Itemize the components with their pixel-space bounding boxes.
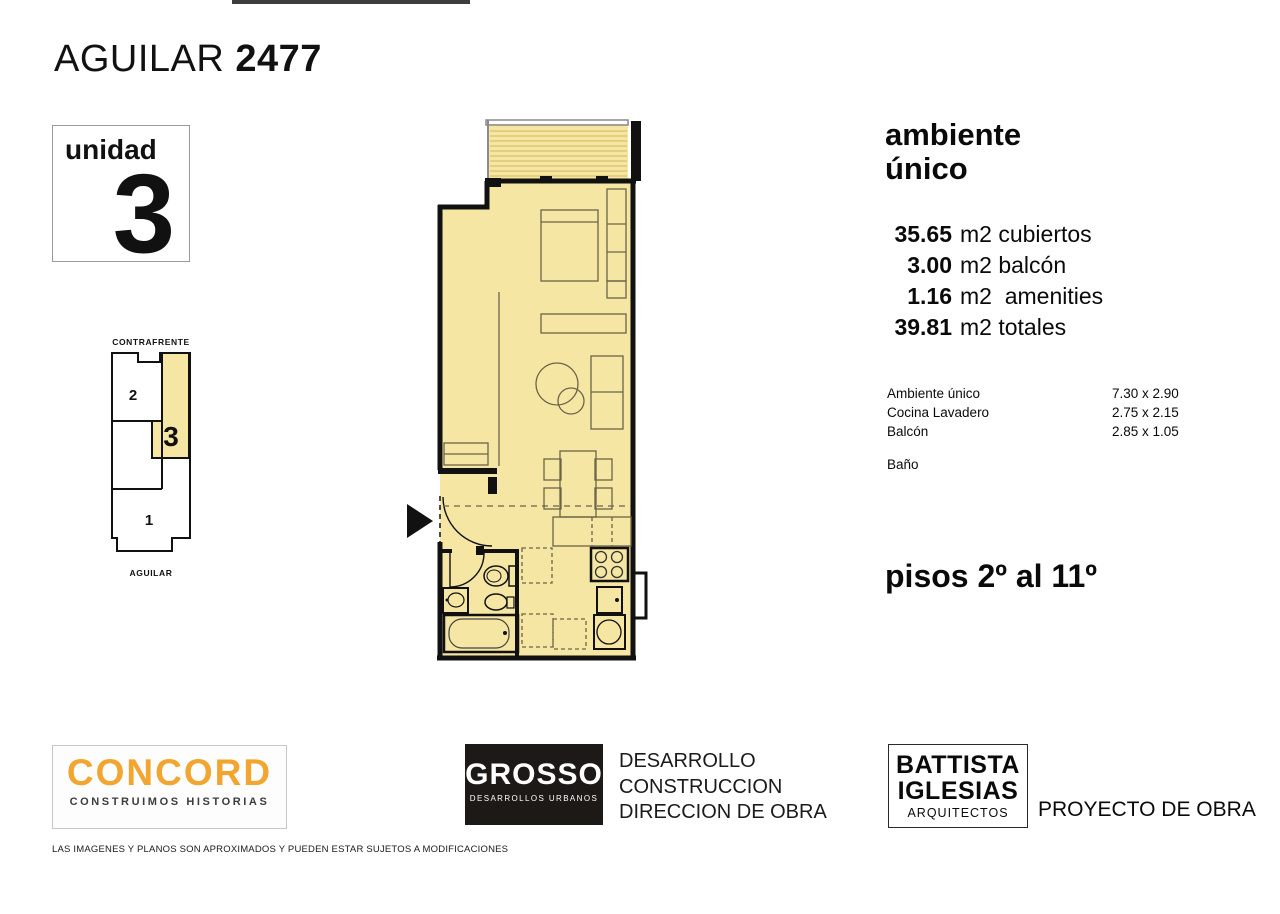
concord-tagline: CONSTRUIMOS HISTORIAS [53,796,286,808]
concord-logo: CONCORD CONSTRUIMOS HISTORIAS [52,745,287,829]
floors-range: pisos 2º al 11º [885,558,1097,595]
page-title: AGUILAR 2477 [54,38,322,81]
battista-name-line2: IGLESIAS [889,778,1027,804]
unit-badge: unidad 3 [52,125,190,262]
grosso-logo: GROSSO DESARROLLOS URBANOS [465,744,603,825]
battista-subtitle: ARQUITECTOS [889,806,1027,820]
room-dims: 2.85 x 1.05 [1112,422,1190,441]
plan-sheet: AGUILAR 2477 unidad 3 CONTRAFRENTE 2 3 1… [0,0,1280,914]
unit-type-line1: ambiente [885,118,1021,152]
unit-type-heading: ambiente único [885,118,1021,186]
battista-role: PROYECTO DE OBRA [1038,798,1256,822]
top-crop-bar [232,0,470,4]
area-row-totales: 39.81 m2 totales [885,312,1103,343]
street-name: AGUILAR [54,38,224,80]
area-row-amenities: 1.16 m2 amenities [885,281,1103,312]
key-plan-unit3-label: 3 [163,421,179,452]
service-line: CONSTRUCCION [619,775,827,801]
grosso-logo-subtitle: DESARROLLOS URBANOS [465,794,603,803]
area-label: m2 totales [960,312,1066,343]
area-value: 39.81 [885,312,952,343]
room-dims: 7.30 x 2.90 [1112,384,1190,403]
balcony-floor-fill [489,124,628,180]
room-row: Balcón 2.85 x 1.05 [887,422,1190,441]
room-row: Cocina Lavadero 2.75 x 2.15 [887,403,1190,422]
grosso-logo-name: GROSSO [465,760,603,790]
area-value: 35.65 [885,219,952,250]
key-plan: CONTRAFRENTE 2 3 1 AGUILAR [100,330,205,586]
area-label: m2 cubiertos [960,219,1092,250]
key-plan-unit2-label: 2 [129,387,137,404]
battista-name-line1: BATTISTA [889,752,1027,778]
unit-badge-number: 3 [113,164,175,265]
battista-logo: BATTISTA IGLESIAS ARQUITECTOS [888,744,1028,828]
room-name: Balcón [887,422,1112,441]
area-label: m2 amenities [960,281,1103,312]
service-line: DIRECCION DE OBRA [619,800,827,826]
area-row-balcon: 3.00 m2 balcón [885,250,1103,281]
service-line: DESARROLLO [619,749,827,775]
area-row-cubiertos: 35.65 m2 cubiertos [885,219,1103,250]
entrance-arrow [407,504,433,538]
room-row: Ambiente único 7.30 x 2.90 [887,384,1190,403]
concord-logo-name: CONCORD [53,754,286,792]
room-name: Cocina Lavadero [887,403,1112,422]
room-dims: 2.75 x 2.15 [1112,403,1190,422]
floor-plan [400,112,670,668]
key-plan-unit1-label: 1 [145,512,153,529]
area-value: 3.00 [885,250,952,281]
grosso-services: DESARROLLO CONSTRUCCION DIRECCION DE OBR… [619,749,827,826]
disclaimer-text: LAS IMAGENES Y PLANOS SON APROXIMADOS Y … [52,844,508,855]
room-dimensions-table: Ambiente único 7.30 x 2.90 Cocina Lavade… [887,384,1190,441]
key-plan-bottom-label: AGUILAR [130,568,173,578]
room-name: Ambiente único [887,384,1112,403]
area-value: 1.16 [885,281,952,312]
street-number: 2477 [235,38,322,80]
area-label: m2 balcón [960,250,1066,281]
key-plan-top-label: CONTRAFRENTE [112,337,190,347]
area-summary: 35.65 m2 cubiertos 3.00 m2 balcón 1.16 m… [885,219,1103,343]
unit-type-line2: único [885,152,1021,186]
room-bano: Baño [887,457,919,472]
